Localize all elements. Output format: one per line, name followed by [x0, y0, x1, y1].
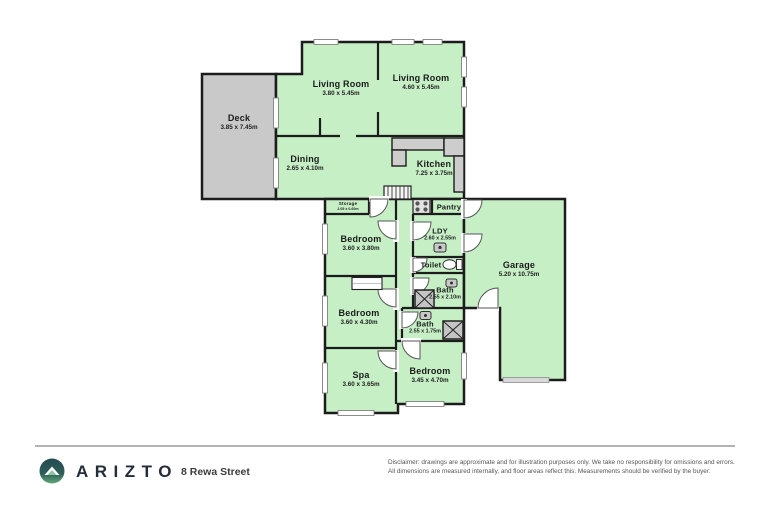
- floorplan-page: Living Room 3.80 x 5.45m Living Room 4.6…: [0, 0, 768, 512]
- brand-name: ARIZTO: [76, 462, 178, 482]
- room-label-living1: Living Room 3.80 x 5.45m: [313, 79, 370, 97]
- garage-area: [464, 199, 565, 380]
- deck-area: [202, 74, 276, 199]
- window: [462, 57, 467, 77]
- window: [338, 411, 374, 416]
- room-label-bedroom1: Bedroom 3.60 x 3.80m: [341, 234, 382, 252]
- stove-icon: [413, 200, 430, 214]
- listing-address: 8 Rewa Street: [181, 466, 250, 478]
- window: [323, 363, 328, 393]
- window: [274, 98, 279, 128]
- arizto-logo-icon: [38, 457, 66, 485]
- shower-icon: [443, 321, 463, 339]
- room-label-bedroom2: Bedroom 3.60 x 4.30m: [339, 308, 380, 326]
- toilet-icon: [443, 260, 462, 270]
- room-label-bath2: Bath 2.55 x 1.75m: [409, 319, 441, 334]
- room-label-storage: Storage 2.05 x 0.60m: [337, 201, 358, 211]
- wardrobe: [352, 278, 382, 290]
- window: [314, 40, 338, 45]
- room-label-garage: Garage 5.20 x 10.75m: [499, 260, 540, 278]
- disclaimer-line2: All dimensions are measured internally, …: [388, 468, 710, 475]
- window: [392, 40, 414, 45]
- sink-icon: [434, 243, 446, 252]
- window: [423, 40, 442, 45]
- room-label-bedroom3: Bedroom 3.45 x 4.70m: [410, 366, 451, 384]
- window: [274, 158, 279, 188]
- window: [462, 87, 467, 107]
- window: [323, 224, 328, 254]
- room-label-ldy: LDY 2.60 x 2.55m: [424, 226, 456, 241]
- floorplan-drawing: [0, 0, 768, 512]
- window: [462, 353, 467, 379]
- room-label-toilet: Toilet: [421, 261, 442, 270]
- room-label-spa: Spa 3.60 x 3.65m: [342, 370, 379, 388]
- room-label-kitchen: Kitchen 7.25 x 3.75m: [415, 159, 452, 177]
- disclaimer-text: Disclaimer: drawings are approximate and…: [388, 459, 740, 477]
- room-label-dining: Dining 2.65 x 4.10m: [286, 154, 323, 172]
- window: [323, 296, 328, 326]
- disclaimer-line1: Disclaimer: drawings are approximate and…: [388, 459, 735, 466]
- room-label-bath1: Bath 2.55 x 2.10m: [429, 285, 461, 300]
- room-label-living2: Living Room 4.60 x 5.45m: [393, 73, 450, 91]
- footer-divider: [35, 445, 735, 447]
- room-label-deck: Deck 3.85 x 7.45m: [220, 113, 257, 131]
- garage-door: [503, 378, 549, 383]
- window: [406, 402, 444, 407]
- room-label-pantry: Pantry: [437, 203, 462, 212]
